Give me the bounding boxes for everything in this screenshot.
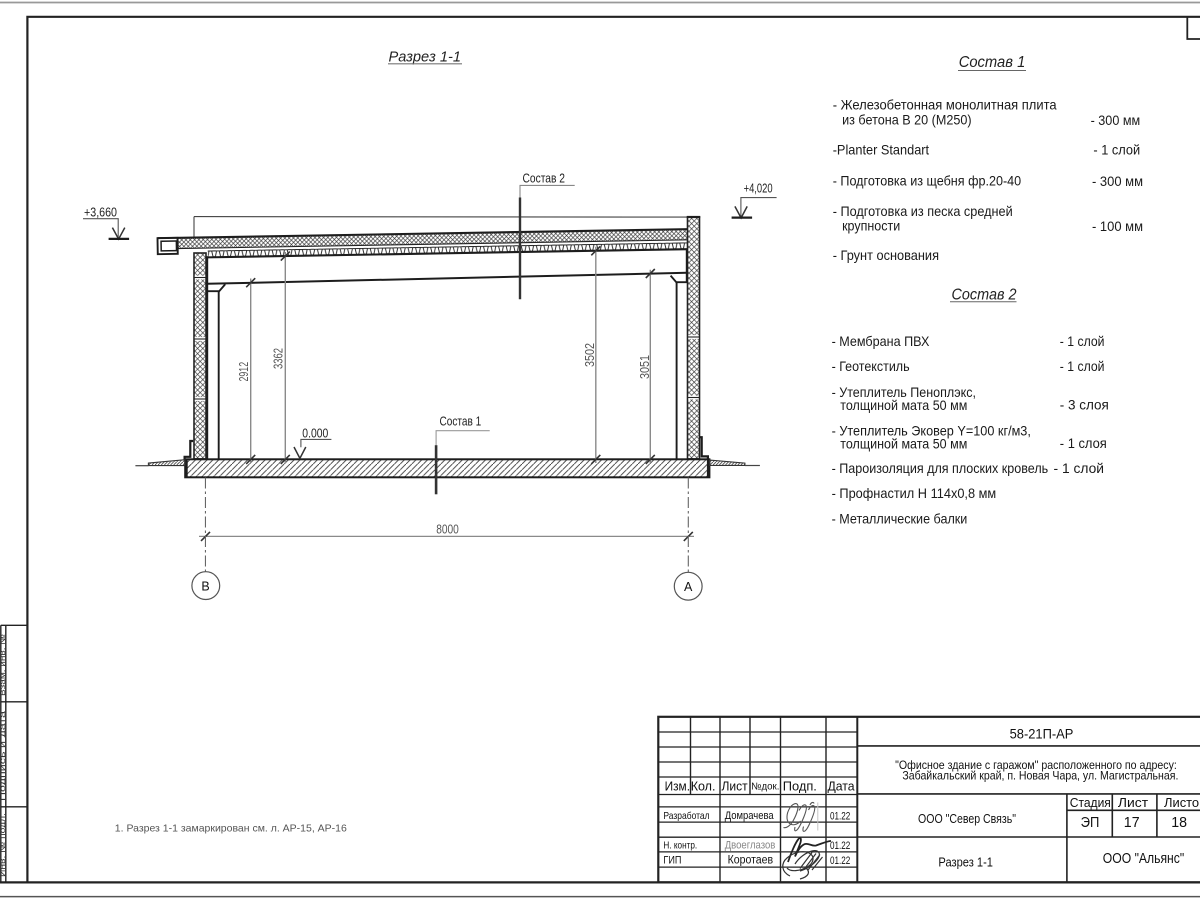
svg-text:Стадия: Стадия	[1070, 795, 1111, 810]
svg-text:№док.: №док.	[751, 782, 779, 793]
svg-text:- Металлические балки: - Металлические балки	[832, 512, 968, 527]
svg-text:Состав 2: Состав 2	[523, 172, 566, 186]
svg-text:Состав 2: Состав 2	[952, 287, 1017, 304]
svg-text:- Подготовка из песка средней: - Подготовка из песка средней	[833, 204, 1013, 219]
svg-text:0.000: 0.000	[302, 425, 328, 440]
svg-text:1. Разрез 1-1 замаркирован см.: 1. Разрез 1-1 замаркирован см. л. АР-15,…	[115, 823, 347, 835]
svg-text:Разрез 1-1: Разрез 1-1	[389, 49, 462, 66]
svg-text:Изм.: Изм.	[665, 779, 690, 794]
svg-text:-Planter Standart: -Planter Standart	[833, 143, 930, 158]
svg-text:+4,020: +4,020	[744, 180, 773, 195]
svg-text:- 300 мм: - 300 мм	[1092, 174, 1143, 189]
svg-text:- 300 мм: - 300 мм	[1091, 113, 1141, 128]
svg-text:8000: 8000	[436, 521, 459, 536]
svg-text:- Профнастил Н 114х0,8 мм: - Профнастил Н 114х0,8 мм	[832, 486, 997, 501]
svg-text:Разрез 1-1: Разрез 1-1	[938, 854, 993, 869]
svg-text:01.22: 01.22	[830, 840, 850, 852]
svg-text:- 1 слой: - 1 слой	[1060, 359, 1105, 374]
svg-text:Н. контр.: Н. контр.	[663, 840, 697, 852]
svg-text:Инв. № подл.: Инв. № подл.	[0, 813, 7, 877]
svg-text:толщиной мата 50 мм: толщиной мата 50 мм	[840, 398, 967, 413]
svg-text:Разработал: Разработал	[663, 810, 709, 822]
svg-text:Домрачева: Домрачева	[725, 810, 775, 822]
svg-text:Состав 1: Состав 1	[440, 415, 482, 429]
svg-text:Кол.: Кол.	[691, 779, 716, 794]
svg-text:из бетона В 20 (М250): из бетона В 20 (М250)	[842, 113, 972, 128]
svg-text:Забайкальский край, п. Новая Ч: Забайкальский край, п. Новая Чара, ул. М…	[902, 769, 1178, 783]
svg-text:Состав 1: Состав 1	[959, 54, 1026, 71]
svg-text:В: В	[201, 579, 209, 593]
svg-text:- 100 мм: - 100 мм	[1092, 219, 1143, 234]
svg-text:ГИП: ГИП	[663, 855, 681, 867]
svg-text:Подп.: Подп.	[783, 779, 817, 794]
svg-text:ЭП: ЭП	[1081, 815, 1100, 831]
svg-text:А: А	[684, 580, 693, 594]
svg-text:3502: 3502	[582, 343, 597, 367]
svg-text:крупности: крупности	[842, 219, 900, 234]
svg-text:- 1 слой: - 1 слой	[1060, 334, 1105, 349]
svg-text:+3,660: +3,660	[84, 204, 117, 219]
svg-text:- 3 слоя: - 3 слоя	[1060, 398, 1109, 413]
svg-text:ООО "Альянс": ООО "Альянс"	[1103, 851, 1184, 867]
svg-text:- Мембрана ПВХ: - Мембрана ПВХ	[832, 334, 930, 349]
svg-text:- Геотекстиль: - Геотекстиль	[832, 359, 910, 374]
svg-text:3051: 3051	[637, 355, 652, 379]
svg-text:Лист: Лист	[722, 779, 748, 794]
svg-text:Лист: Лист	[1118, 795, 1148, 810]
svg-text:- Пароизоляция для плоских кро: - Пароизоляция для плоских кровель	[832, 461, 1049, 476]
svg-text:ООО "Север Связь": ООО "Север Связь"	[918, 811, 1016, 826]
svg-text:- 1 слой: - 1 слой	[1093, 143, 1140, 158]
svg-text:толщиной мата 50 мм: толщиной мата 50 мм	[840, 436, 967, 451]
svg-text:01.22: 01.22	[830, 811, 850, 823]
svg-text:Двоеглазов: Двоеглазов	[725, 840, 776, 852]
svg-text:17: 17	[1124, 815, 1140, 831]
svg-text:3362: 3362	[271, 348, 286, 369]
svg-text:Подпись и дата: Подпись и дата	[0, 710, 7, 801]
svg-text:Коротаев: Коротаев	[728, 855, 774, 867]
svg-text:- Железобетонная монолитная п: - Железобетонная монолитная плита	[833, 98, 1057, 113]
svg-text:Взам. инв. №: Взам. инв. №	[0, 634, 7, 696]
svg-text:2912: 2912	[236, 362, 251, 382]
svg-text:Дата: Дата	[827, 779, 855, 794]
svg-text:- Грунт основания: - Грунт основания	[833, 248, 939, 263]
svg-text:01.22: 01.22	[830, 855, 850, 867]
svg-text:Листов: Листов	[1164, 795, 1200, 810]
svg-text:18: 18	[1171, 815, 1187, 831]
svg-text:- 1 слоя: - 1 слоя	[1060, 436, 1107, 451]
svg-text:- 1 слой: - 1 слой	[1054, 461, 1105, 476]
svg-text:- Подготовка из щебня фр.20-40: - Подготовка из щебня фр.20-40	[833, 174, 1022, 189]
svg-text:58-21П-АР: 58-21П-АР	[1010, 726, 1074, 742]
